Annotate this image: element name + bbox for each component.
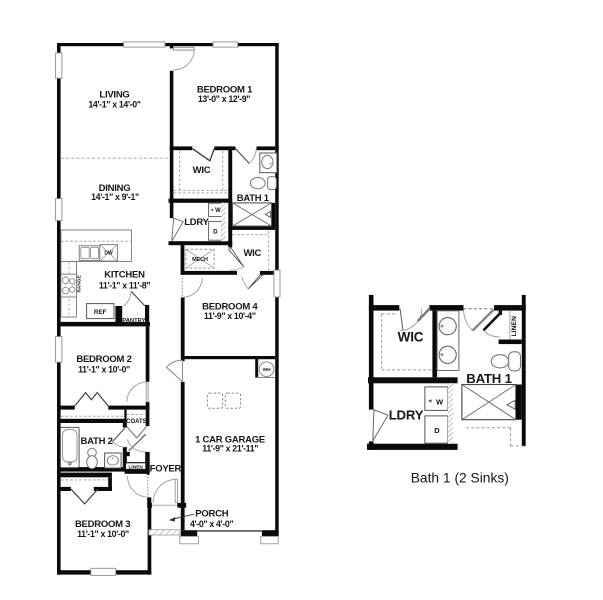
- svg-text:BATH 1: BATH 1: [466, 371, 511, 386]
- svg-text:Bath 1 (2 Sinks): Bath 1 (2 Sinks): [411, 470, 509, 485]
- svg-text:11'-1" x 10'-0": 11'-1" x 10'-0": [78, 364, 130, 374]
- svg-text:14'-1" x 9'-1": 14'-1" x 9'-1": [91, 192, 139, 202]
- svg-text:BATH 2: BATH 2: [81, 436, 113, 447]
- svg-text:11'-1" x 10'-0": 11'-1" x 10'-0": [77, 529, 129, 539]
- svg-text:REF: REF: [94, 309, 107, 316]
- svg-text:PANTRY: PANTRY: [122, 318, 145, 324]
- svg-text:LINEN: LINEN: [128, 464, 143, 470]
- svg-text:D: D: [434, 426, 440, 435]
- svg-text:LDRY: LDRY: [389, 408, 424, 423]
- svg-text:4'-0" x 4'-0": 4'-0" x 4'-0": [190, 519, 233, 529]
- svg-text:13'-0" x 12'-9": 13'-0" x 12'-9": [198, 94, 250, 104]
- svg-text:WIC: WIC: [243, 248, 261, 259]
- svg-text:11'-1" x 11'-8": 11'-1" x 11'-8": [99, 280, 150, 290]
- svg-text:WIC: WIC: [398, 330, 424, 345]
- svg-text:RANGE: RANGE: [77, 275, 83, 293]
- svg-text:MECH: MECH: [192, 257, 208, 263]
- svg-text:KITCHEN: KITCHEN: [104, 270, 145, 281]
- svg-text:WIC: WIC: [193, 165, 211, 176]
- svg-text:W: W: [215, 208, 221, 214]
- svg-text:PORCH: PORCH: [195, 509, 228, 520]
- svg-text:LINEN: LINEN: [511, 316, 518, 336]
- svg-text:COATS: COATS: [126, 419, 147, 425]
- svg-text:11'-9" x 21'-11": 11'-9" x 21'-11": [202, 444, 258, 454]
- svg-text:DW: DW: [104, 251, 113, 257]
- svg-text:LDRY: LDRY: [184, 217, 209, 228]
- svg-text:FOYER: FOYER: [150, 464, 182, 475]
- svg-text:11'-9" x 10'-4": 11'-9" x 10'-4": [204, 311, 256, 321]
- svg-text:BATH 1: BATH 1: [237, 193, 270, 204]
- svg-text:14'-1" x 14'-0": 14'-1" x 14'-0": [88, 99, 140, 109]
- svg-text:D: D: [213, 229, 218, 235]
- svg-text:BEDROOM 2: BEDROOM 2: [76, 354, 131, 365]
- svg-text:W: W: [436, 397, 444, 406]
- svg-text:WH: WH: [263, 367, 272, 373]
